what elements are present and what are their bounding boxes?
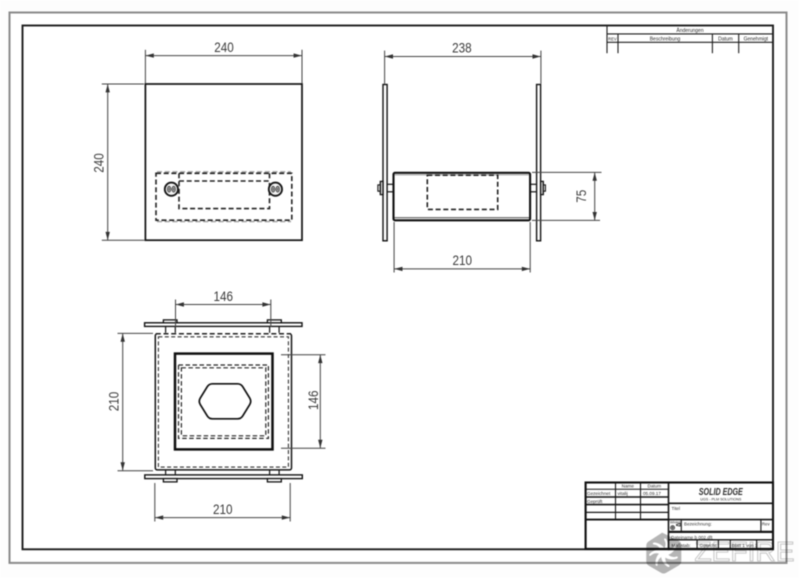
svg-text:210: 210 [107,392,122,412]
svg-text:REV: REV [608,37,617,42]
svg-text:SOLID EDGE: SOLID EDGE [699,486,744,498]
svg-text:Datum: Datum [718,37,733,43]
svg-text:210: 210 [453,253,473,268]
svg-text:Gezeichnet: Gezeichnet [587,491,611,496]
svg-text:05.09.17: 05.09.17 [643,491,661,496]
svg-text:ZEFIRE: ZEFIRE [695,536,795,567]
svg-text:Genehmigt: Genehmigt [744,37,769,43]
svg-text:240: 240 [214,40,234,55]
svg-text:Rev: Rev [762,522,771,527]
svg-text:Name: Name [622,484,635,489]
svg-text:UGS - PLM SOLUTIONS: UGS - PLM SOLUTIONS [700,497,742,501]
svg-text:Bezeichnung:: Bezeichnung: [684,522,712,527]
svg-text:75: 75 [574,190,589,203]
svg-text:Beschreibung: Beschreibung [650,37,681,43]
svg-text:Änderungen: Änderungen [676,27,703,34]
svg-text:Titel: Titel [672,506,681,511]
svg-text:210: 210 [213,502,233,517]
svg-text:Winkel: Winkel [670,521,681,525]
svg-text:238: 238 [452,41,472,56]
svg-text:Geprüft: Geprüft [587,499,603,504]
svg-text:146: 146 [213,289,233,304]
svg-text:Datum: Datum [648,484,662,489]
svg-text:146: 146 [306,391,321,411]
svg-text:vitalij: vitalij [618,491,628,496]
svg-text:240: 240 [92,153,107,173]
